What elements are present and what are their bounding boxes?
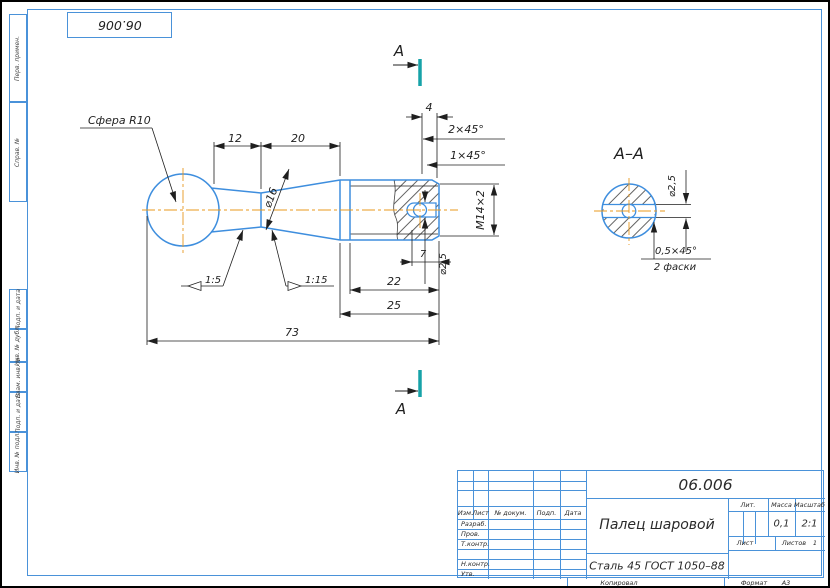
dim-total-length: 73 — [285, 326, 299, 339]
dim-hole-diameter: ⌀2,5 — [438, 253, 449, 275]
dim-chamfer-2: 2×45° — [448, 123, 484, 136]
grid-line — [458, 549, 586, 550]
sphere-label: Сфера R10 — [88, 114, 151, 127]
cut-letter-bottom: А — [395, 400, 406, 418]
section-hole-diameter: ⌀2,5 — [667, 175, 678, 197]
taper-symbol-left — [188, 282, 201, 291]
material: Сталь 45 ГОСТ 1050–88 — [589, 560, 725, 573]
grid-line — [458, 481, 586, 482]
grid-line — [755, 511, 756, 544]
dim-thread: М14×2 — [474, 190, 487, 230]
scale-label: Масштаб — [794, 501, 825, 509]
footer-divider — [567, 578, 568, 588]
dim-neck-length: 12 — [228, 132, 242, 145]
dim-shank-length: 25 — [387, 299, 401, 312]
grid-line — [458, 569, 586, 570]
section-chamfer-count: 2 фаски — [654, 262, 697, 273]
row-nkontr: Н.контр. — [461, 560, 490, 568]
sheets-value: 1 — [813, 539, 817, 547]
mass-label: Масса — [771, 501, 792, 509]
dim-chamfer-1: 1×45° — [450, 149, 486, 162]
col-list: Лист — [472, 509, 488, 517]
grid-line — [458, 490, 586, 491]
cut-letter-top: А — [393, 42, 404, 60]
row-prov: Пров. — [461, 530, 480, 538]
format-value: А3 — [782, 579, 791, 587]
part-name: Палец шаровой — [599, 517, 714, 533]
grid-line — [728, 536, 825, 537]
title-block: Изм. Лист № докум. Подп. Дата Разраб. Пр… — [457, 470, 824, 578]
grid-line — [560, 471, 561, 579]
section-view-title: А–А — [613, 144, 644, 163]
sheets-label: Листов — [782, 539, 806, 547]
col-podp: Подп. — [537, 509, 557, 517]
grid-line — [728, 550, 825, 551]
annotation-labels: Сфера R10 12 20 4 2×45° 1×45° ⌀16 М14×2 … — [88, 42, 697, 418]
grid-line — [533, 471, 534, 579]
dim-thread-length: 22 — [387, 275, 401, 288]
scale-value: 2:1 — [801, 518, 817, 529]
mass-value: 0,1 — [774, 518, 790, 529]
footer-divider — [724, 578, 725, 588]
row-utv: Утв. — [461, 570, 475, 578]
col-data: Дата — [565, 509, 582, 517]
grid-line — [458, 506, 586, 507]
doc-number: 06.006 — [678, 476, 732, 494]
sheet-label: Лист — [737, 539, 753, 547]
taper-left-label: 1:5 — [205, 275, 221, 286]
grid-line — [586, 553, 728, 554]
section-chamfer-size: 0,5×45° — [655, 246, 697, 257]
taper-right-label: 1:15 — [305, 275, 327, 286]
copied-label: Копировал — [600, 579, 637, 587]
row-tkontr: Т.контр. — [461, 540, 489, 548]
grid-line — [728, 511, 825, 512]
drawing-sheet: 06.006 Перв. примен. Справ. № Подп. и да… — [0, 0, 830, 588]
grid-line — [775, 536, 776, 550]
dim-cone-diameter: ⌀16 — [261, 186, 281, 210]
dim-thread-runout: 4 — [426, 101, 433, 114]
dim-cone-length: 20 — [291, 132, 305, 145]
dim-hole-offset: 7 — [420, 249, 427, 260]
grid-line — [768, 498, 769, 536]
col-dokum: № докум. — [494, 509, 526, 517]
col-izm: Изм. — [458, 509, 473, 517]
format-label: Формат — [741, 579, 767, 587]
grid-line — [586, 498, 825, 499]
row-razrab: Разраб. — [461, 520, 487, 528]
grid-line — [586, 471, 587, 579]
lit-label: Лит. — [741, 501, 756, 509]
taper-symbol-right — [288, 282, 301, 291]
